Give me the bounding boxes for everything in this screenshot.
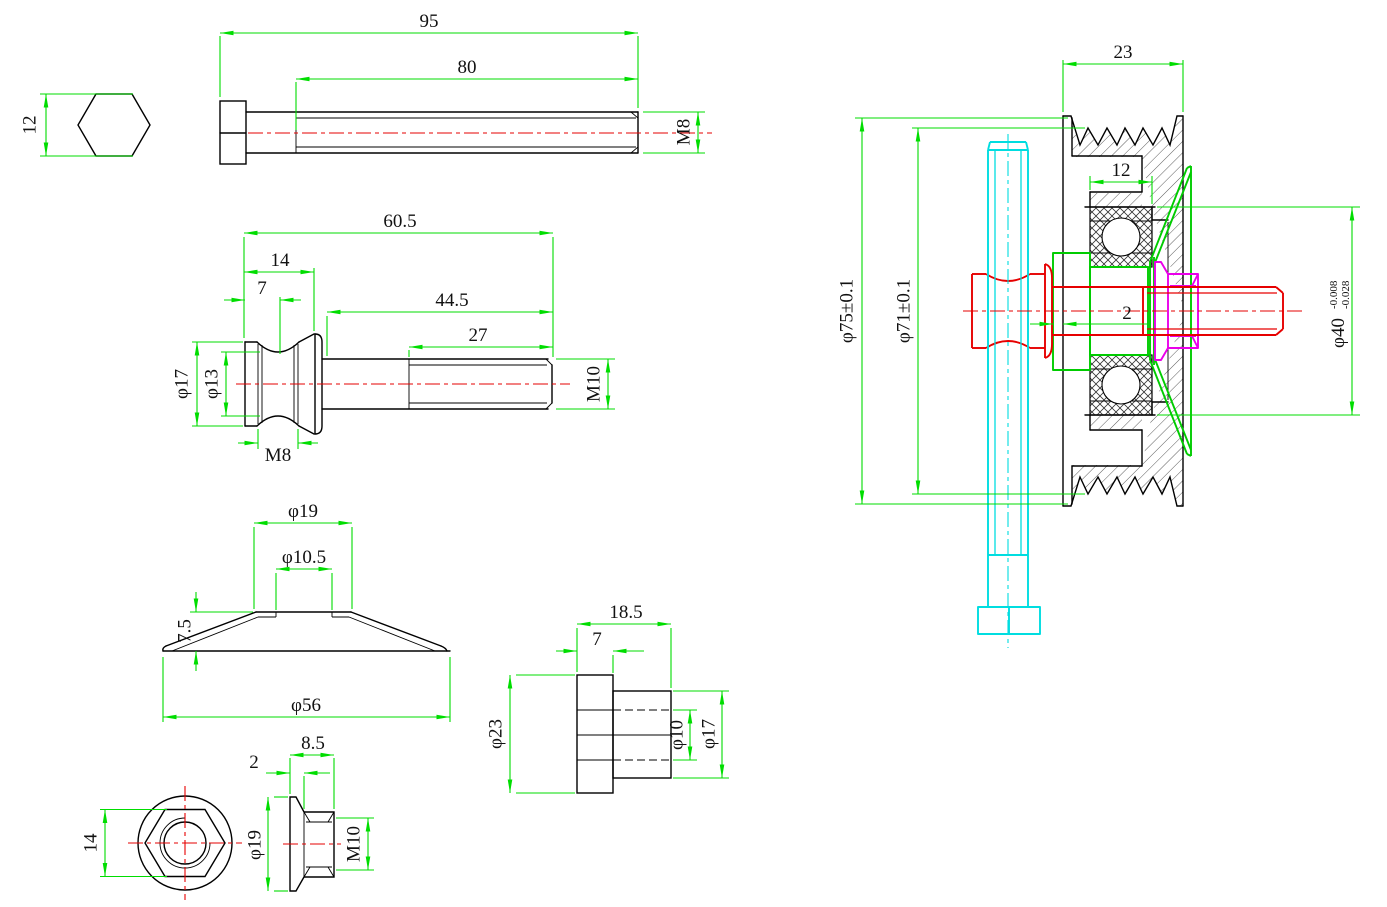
assembly-bolt [978, 142, 1040, 634]
dim-bolt-total-length: 95 [420, 11, 439, 32]
dim-bushing-bore-dia: φ10 [666, 720, 687, 750]
view-bolt-side: 95 80 M8 [220, 11, 712, 164]
view-nut-side: 8.5 2 φ19 M10 [244, 733, 374, 891]
dim-nut-flange-dia: φ19 [244, 830, 265, 860]
dim-assembly-clearance: 2 [1122, 303, 1132, 324]
hex-head-outline [78, 94, 150, 156]
dim-nut-across-flats: 14 [80, 833, 101, 853]
dim-nut-thread-spec: M10 [343, 826, 364, 862]
view-assembly: 23 12 2 φ75±0.1 φ71±0.1 φ40 -0.008 -0.02… [836, 42, 1360, 648]
view-bolt-end: 12 [19, 94, 150, 156]
dim-washer-base-dia: φ56 [291, 695, 321, 716]
dim-washer-hole-dia: φ10.5 [282, 547, 326, 568]
dim-bolt-across-flats: 12 [19, 116, 40, 135]
dim-bushing-total-length: 18.5 [609, 602, 642, 623]
dim-nut-flange-width: 2 [249, 752, 259, 773]
dim-bushing-flange-dia: φ23 [485, 719, 506, 749]
dim-bolt-thread-length: 80 [458, 57, 477, 78]
dim-washer-top-dia: φ19 [288, 501, 318, 522]
view-cone-washer: φ19 φ10.5 7.5 φ56 [163, 501, 450, 722]
dim-bushing-flange-length: 7 [592, 629, 602, 650]
dim-assembly-outer-dia: φ75±0.1 [836, 279, 857, 343]
dim-bolt-thread-spec: M8 [673, 119, 694, 145]
dim-bushing-body-dia: φ17 [698, 719, 719, 749]
dim-spool-groove-center: 7 [257, 278, 267, 299]
dim-spool-total-length: 60.5 [383, 211, 416, 232]
view-nut-front: 14 [80, 786, 242, 900]
dim-assembly-bearing-width: 12 [1112, 160, 1131, 181]
dim-spool-shank-length: 44.5 [435, 290, 468, 311]
dim-assembly-tip-dia: φ71±0.1 [893, 279, 914, 343]
dim-washer-height: 7.5 [174, 619, 195, 643]
dim-spool-thread-length: 27 [469, 325, 488, 346]
cad-drawing-svg: 12 95 80 M8 60.5 14 [0, 0, 1387, 907]
dim-spool-head-length: 14 [271, 250, 291, 271]
dim-spool-thread-spec: M10 [583, 366, 604, 402]
dim-nut-total-width: 8.5 [301, 733, 325, 754]
view-spool-shaft: 60.5 14 7 44.5 27 φ17 φ13 M8 M10 [171, 211, 615, 466]
bearing-lower [1090, 355, 1152, 415]
dim-spool-cross-thread: M8 [265, 445, 291, 466]
bearing-upper [1090, 207, 1152, 267]
bearing-ball-lower [1102, 366, 1140, 404]
dim-assembly-bore-tol-lower: -0.028 [1340, 280, 1352, 309]
bushing-flange [577, 675, 613, 793]
dim-assembly-bore-tol-upper: -0.008 [1328, 280, 1340, 309]
dim-spool-groove-dia: φ13 [201, 369, 222, 399]
cad-drawing-canvas: 12 95 80 M8 60.5 14 [0, 0, 1387, 907]
dim-assembly-bore-dia: φ40 [1328, 318, 1349, 348]
bearing-ball-upper [1102, 218, 1140, 256]
dim-assembly-pulley-width: 23 [1114, 42, 1133, 63]
dim-spool-head-dia: φ17 [171, 369, 192, 399]
dim-assembly-bore-dia-group: φ40 -0.008 -0.028 [1328, 280, 1352, 348]
bushing-body [613, 691, 671, 778]
view-bushing: 18.5 7 φ23 φ10 φ17 [485, 602, 729, 793]
